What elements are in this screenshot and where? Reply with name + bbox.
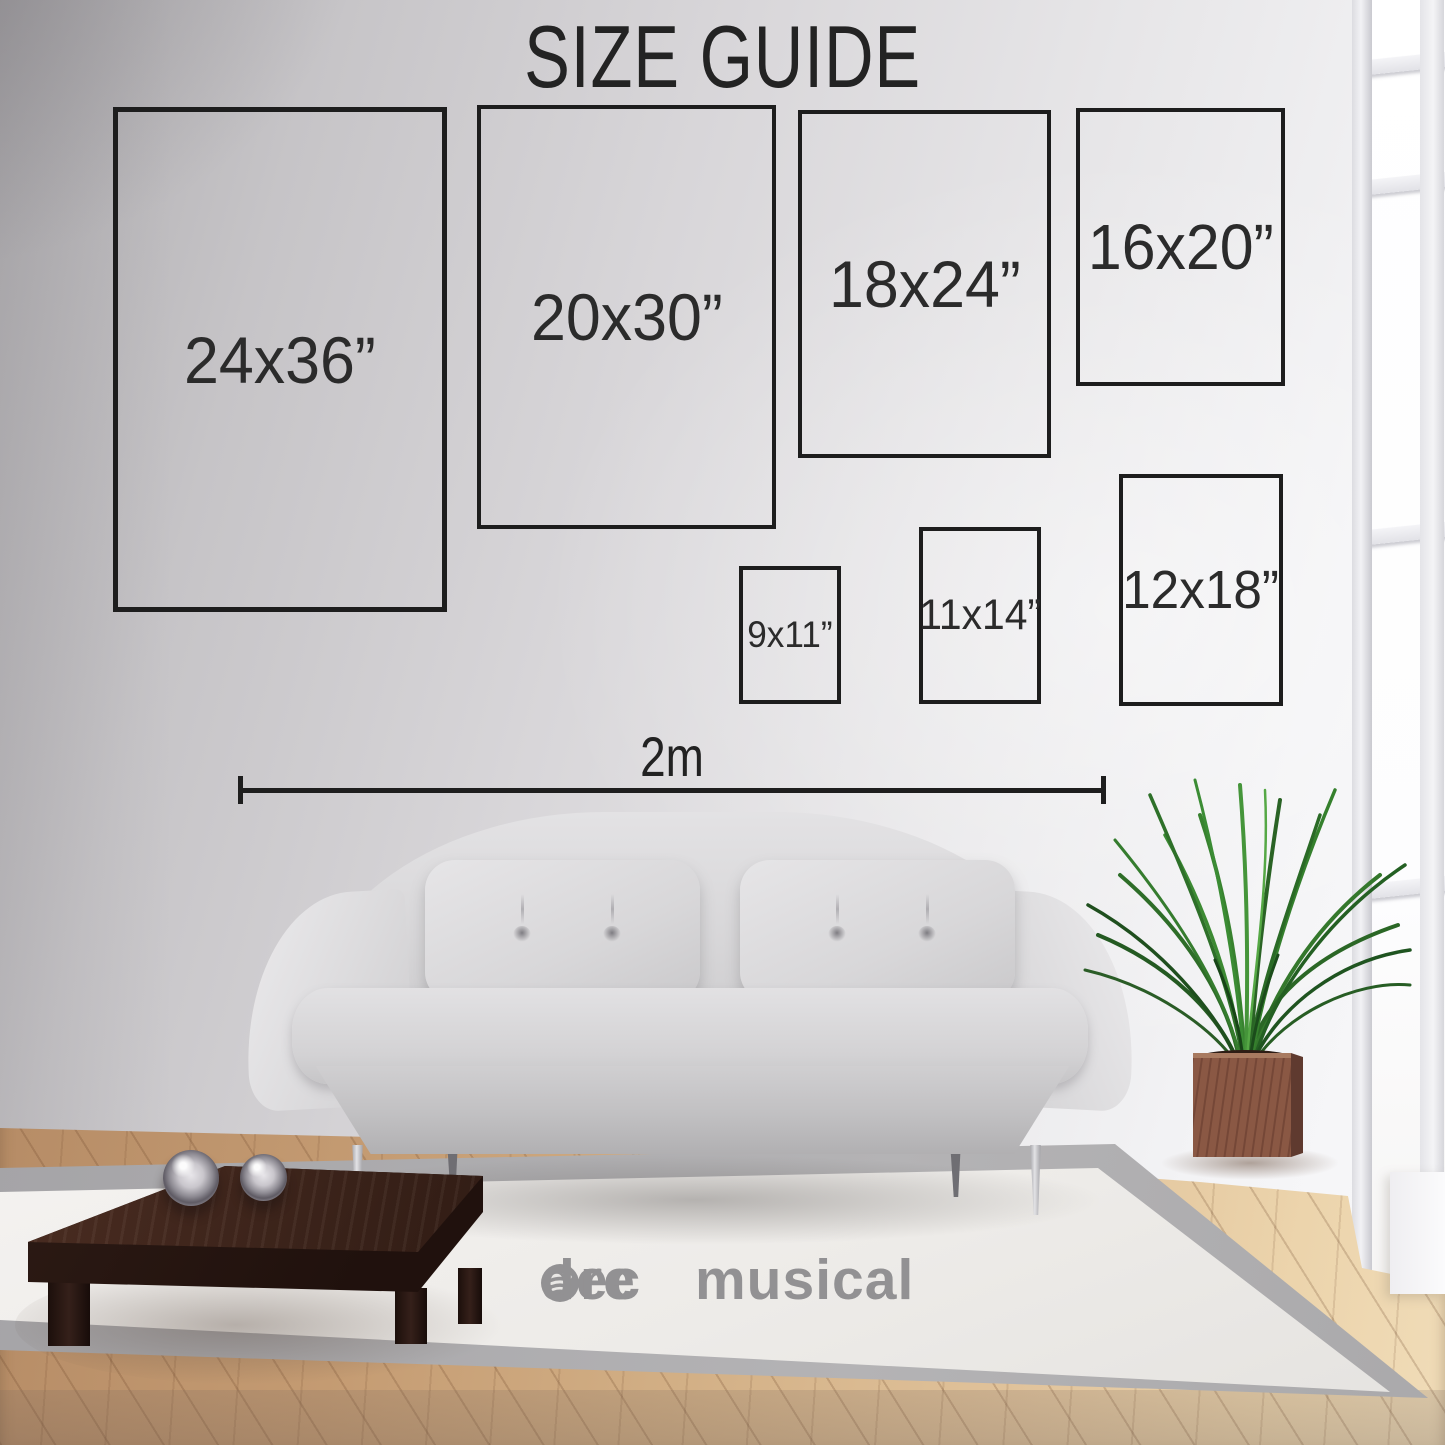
cushion-crease bbox=[926, 894, 929, 924]
size-box-24x36: 24x36” bbox=[113, 107, 447, 612]
size-box-12x18: 12x18” bbox=[1119, 474, 1283, 706]
planter-box bbox=[1193, 1053, 1303, 1157]
scale-bar-label: 2m bbox=[590, 724, 754, 789]
size-label-9x11: 9x11” bbox=[747, 614, 832, 656]
size-label-11x14: 11x14” bbox=[919, 591, 1041, 640]
size-label-12x18: 12x18” bbox=[1123, 559, 1280, 621]
brand-logo-line2: dec re bbox=[540, 1250, 580, 1310]
table-leg bbox=[458, 1268, 482, 1324]
size-label-20x30: 20x30” bbox=[531, 279, 723, 355]
size-label-18x24: 18x24” bbox=[829, 246, 1021, 322]
window-frame bbox=[1420, 0, 1444, 1292]
size-box-20x30: 20x30” bbox=[477, 105, 776, 529]
potted-plant bbox=[1080, 755, 1420, 1265]
cushion-button bbox=[918, 926, 936, 944]
palm-plant-graphic bbox=[1080, 755, 1420, 1265]
size-label-16x20: 16x20” bbox=[1088, 210, 1274, 284]
wood-floor-shading bbox=[0, 1390, 1445, 1445]
table-leg bbox=[395, 1288, 427, 1344]
page-title: SIZE GUIDE bbox=[159, 6, 1286, 108]
size-box-9x11: 9x11” bbox=[739, 566, 841, 704]
sofa-cushion bbox=[740, 860, 1015, 1002]
sofa-base bbox=[300, 1066, 1085, 1154]
size-label-24x36: 24x36” bbox=[184, 322, 376, 398]
cushion-crease bbox=[611, 894, 614, 924]
sofa-cushion bbox=[425, 860, 700, 1002]
cushion-crease bbox=[836, 894, 839, 924]
table-leg bbox=[48, 1278, 90, 1346]
size-guide-poster: SIZE GUIDE 24x36” 20x30” 18x24” 16x20” 9… bbox=[0, 0, 1445, 1445]
cushion-crease bbox=[521, 894, 524, 924]
scale-bar-tick bbox=[238, 776, 243, 804]
brand-logo-line1: musical bbox=[695, 1250, 914, 1310]
glass-sphere bbox=[163, 1150, 219, 1206]
cushion-button bbox=[513, 926, 531, 944]
cushion-button bbox=[603, 926, 621, 944]
size-box-16x20: 16x20” bbox=[1076, 108, 1285, 386]
cushion-button bbox=[828, 926, 846, 944]
scale-bar-line bbox=[240, 788, 1104, 793]
brand-logo-line2-post: re bbox=[580, 1250, 636, 1310]
size-box-11x14: 11x14” bbox=[919, 527, 1041, 704]
size-box-18x24: 18x24” bbox=[798, 110, 1051, 458]
glass-sphere bbox=[240, 1154, 287, 1201]
